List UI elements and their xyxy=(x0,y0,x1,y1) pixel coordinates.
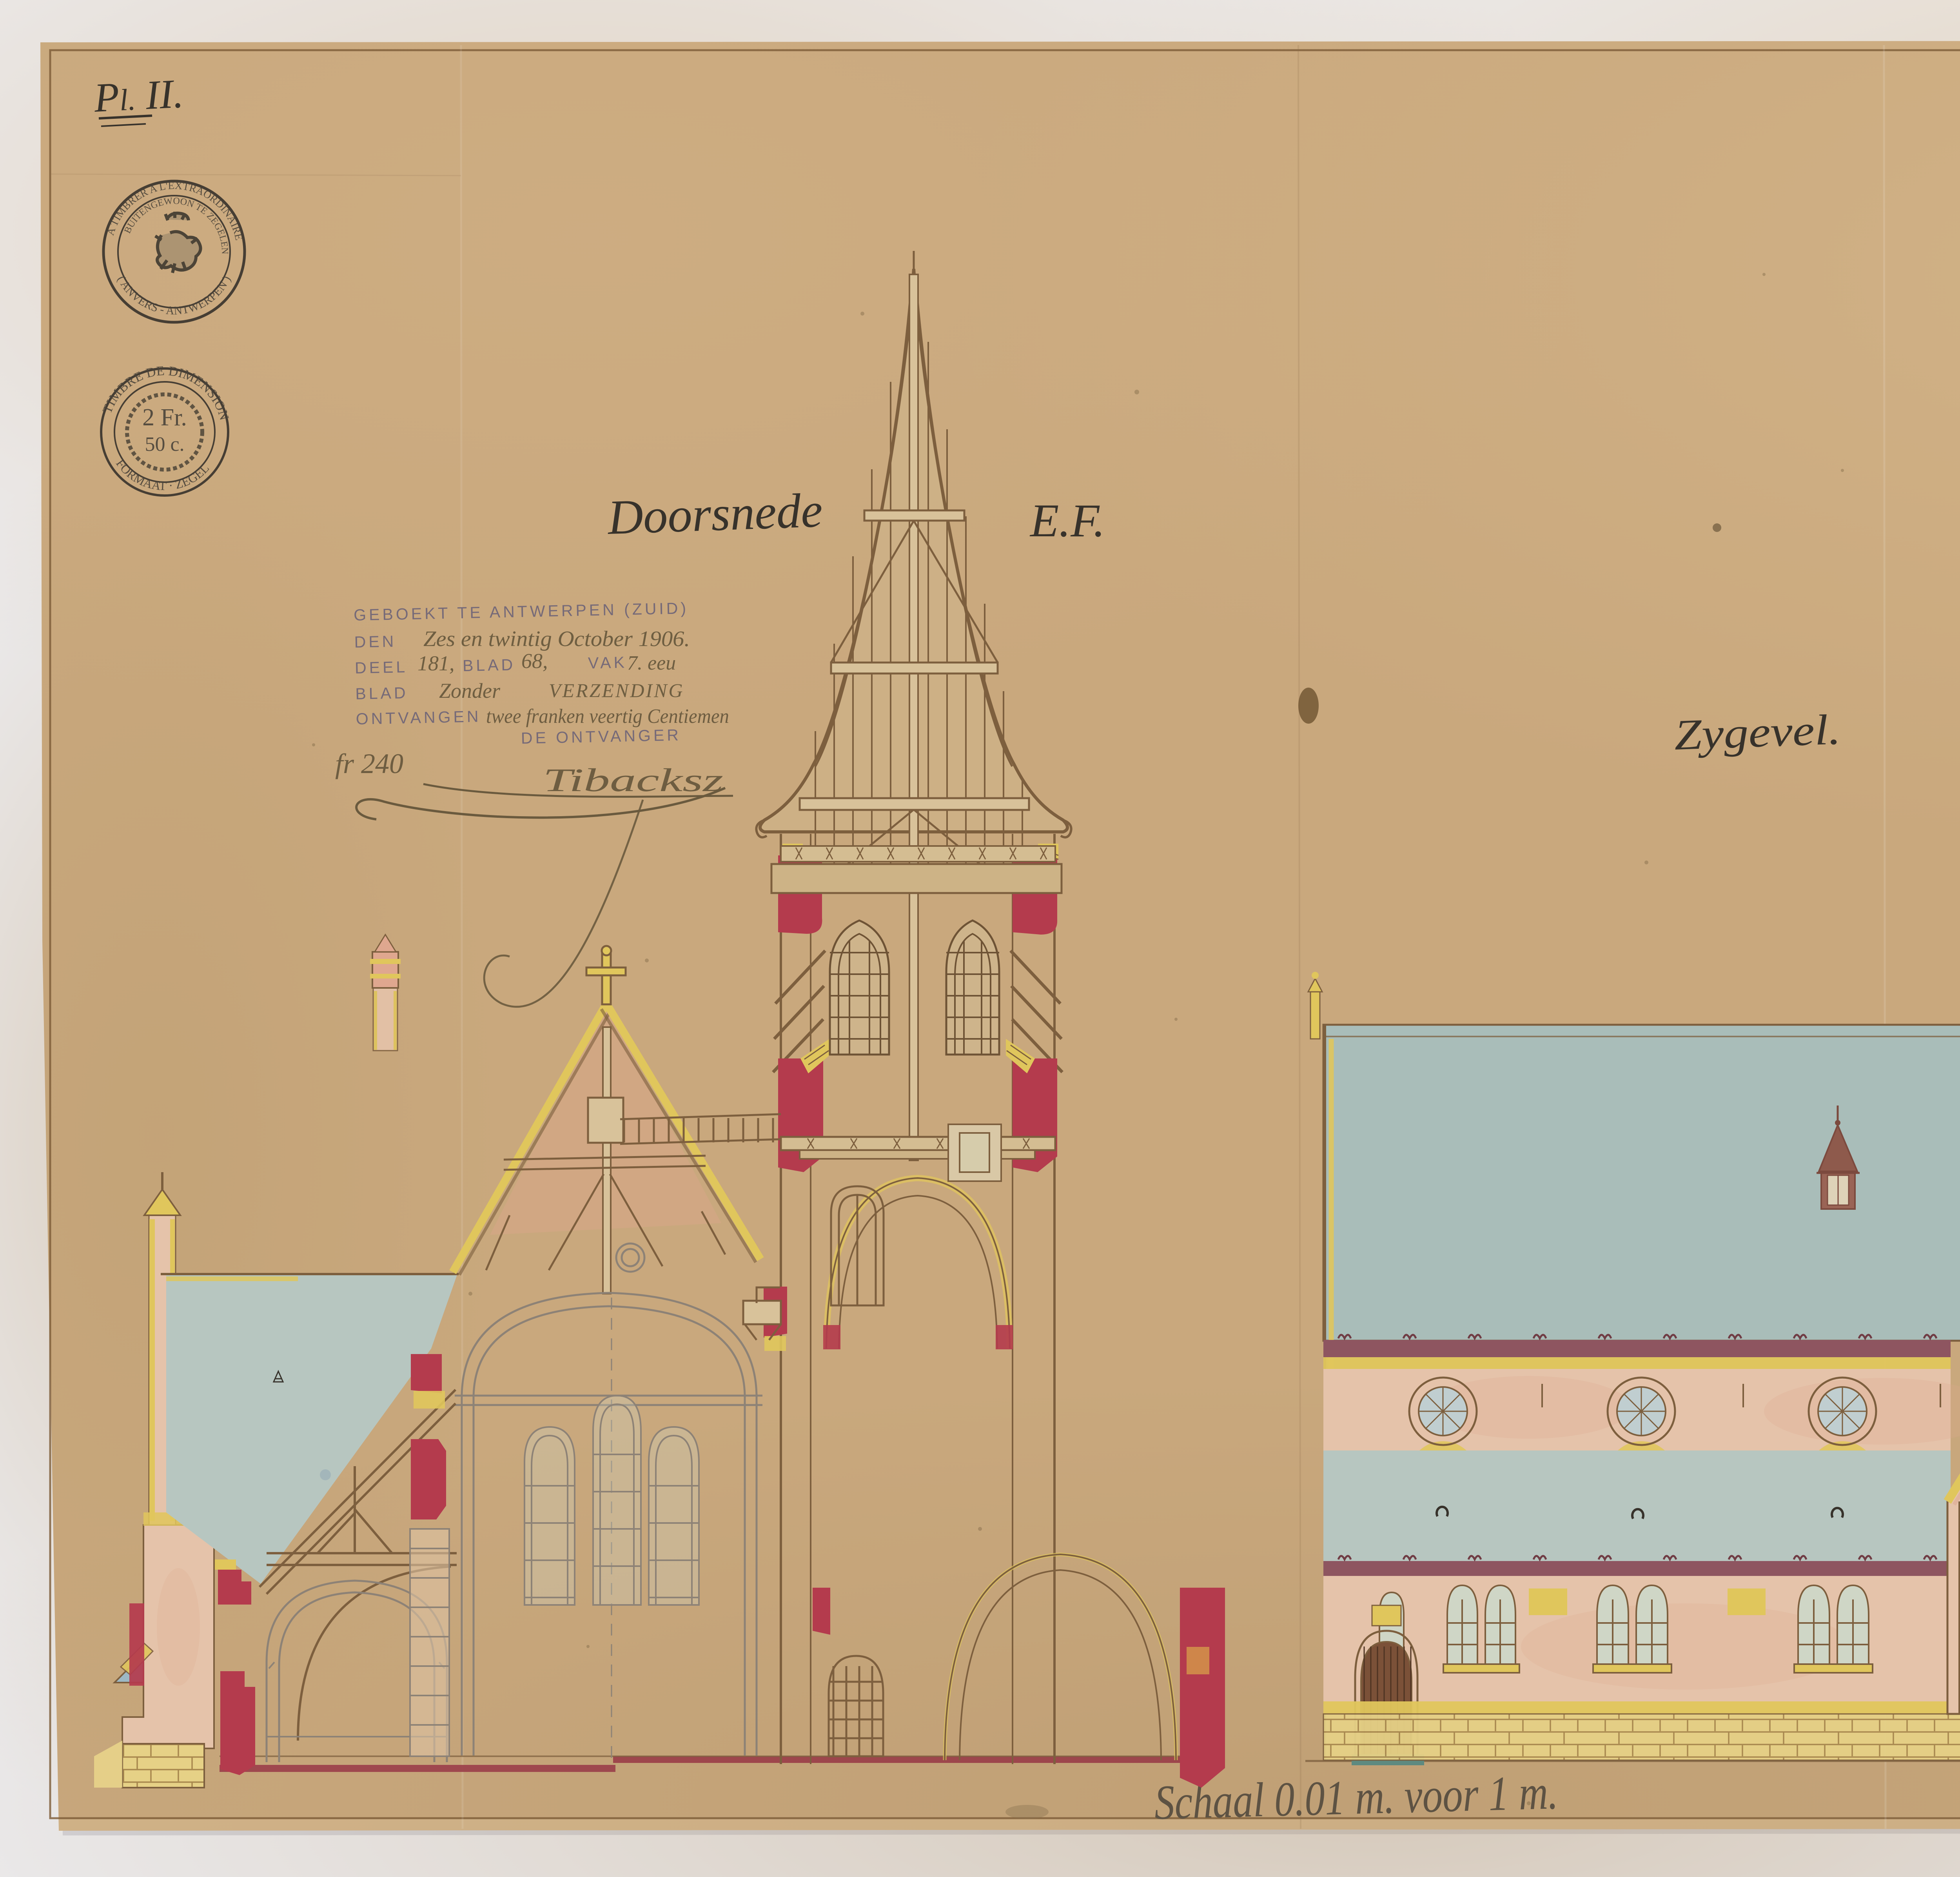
svg-text:2 Fr.: 2 Fr. xyxy=(142,404,187,431)
svg-text:VERZENDING: VERZENDING xyxy=(549,679,684,701)
svg-text:VAK: VAK xyxy=(588,653,627,672)
svg-text:twee franken veertig Centiemen: twee franken veertig Centiemen xyxy=(486,705,729,728)
svg-text:Pl. II.: Pl. II. xyxy=(93,70,185,121)
svg-text:DE ONTVANGER: DE ONTVANGER xyxy=(521,726,681,747)
svg-text:DEN: DEN xyxy=(354,632,397,651)
svg-text:fr 240: fr 240 xyxy=(335,748,403,779)
svg-text:68,: 68, xyxy=(521,649,548,673)
svg-text:7. eeu: 7. eeu xyxy=(627,652,676,674)
svg-text:Tibacksz: Tibacksz xyxy=(543,762,723,799)
svg-text:50 c.: 50 c. xyxy=(145,433,184,456)
svg-text:E.F.: E.F. xyxy=(1029,494,1105,546)
svg-text:ONTVANGEN: ONTVANGEN xyxy=(356,707,481,728)
svg-text:BLAD: BLAD xyxy=(355,684,408,703)
svg-text:Zonder: Zonder xyxy=(439,679,501,703)
svg-text:181,: 181, xyxy=(417,652,455,675)
svg-text:BLAD: BLAD xyxy=(463,655,516,675)
svg-text:Doorsnede: Doorsnede xyxy=(606,483,823,545)
svg-text:Zes en twintig October 1906.: Zes en twintig October 1906. xyxy=(423,627,690,651)
svg-text:Zygevel.: Zygevel. xyxy=(1673,705,1842,759)
svg-text:DEEL: DEEL xyxy=(355,658,408,677)
